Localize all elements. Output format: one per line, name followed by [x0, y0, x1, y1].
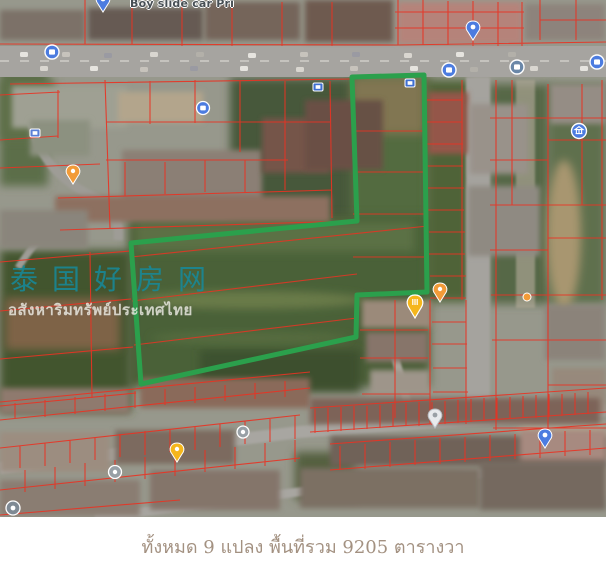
- transit-stop-icon[interactable]: [405, 79, 415, 87]
- poi-label-boy-slide-car[interactable]: Boy slide car Pri: [130, 0, 234, 10]
- watermark-chinese: 泰国好房网: [10, 258, 220, 298]
- government-poi-icon[interactable]: [572, 124, 587, 139]
- transit-stop-icon[interactable]: [313, 83, 323, 91]
- generic-poi-icon[interactable]: [237, 426, 249, 438]
- store-poi-icon[interactable]: [197, 102, 210, 115]
- transit-stop-icon[interactable]: [30, 129, 40, 137]
- shop-dot-icon[interactable]: [523, 293, 531, 301]
- store-poi-icon[interactable]: [45, 45, 59, 59]
- store-poi-icon[interactable]: [510, 60, 524, 74]
- generic-poi-icon[interactable]: [6, 501, 20, 515]
- store-poi-icon[interactable]: [590, 55, 604, 69]
- generic-poi-icon[interactable]: [109, 466, 122, 479]
- watermark-thai: อสังหาริมทรัพย์ประเทศไทย: [8, 298, 193, 322]
- satellite-map[interactable]: Boy slide car Pri 泰国好房网 อสังหาริมทรัพย์ป…: [0, 0, 606, 517]
- store-poi-icon[interactable]: [442, 63, 456, 77]
- listing-page: Boy slide car Pri 泰国好房网 อสังหาริมทรัพย์ป…: [0, 0, 606, 579]
- plot-summary-caption: ทั้งหมด 9 แปลง พื้นที่รวม 9205 ตารางวา: [0, 532, 606, 561]
